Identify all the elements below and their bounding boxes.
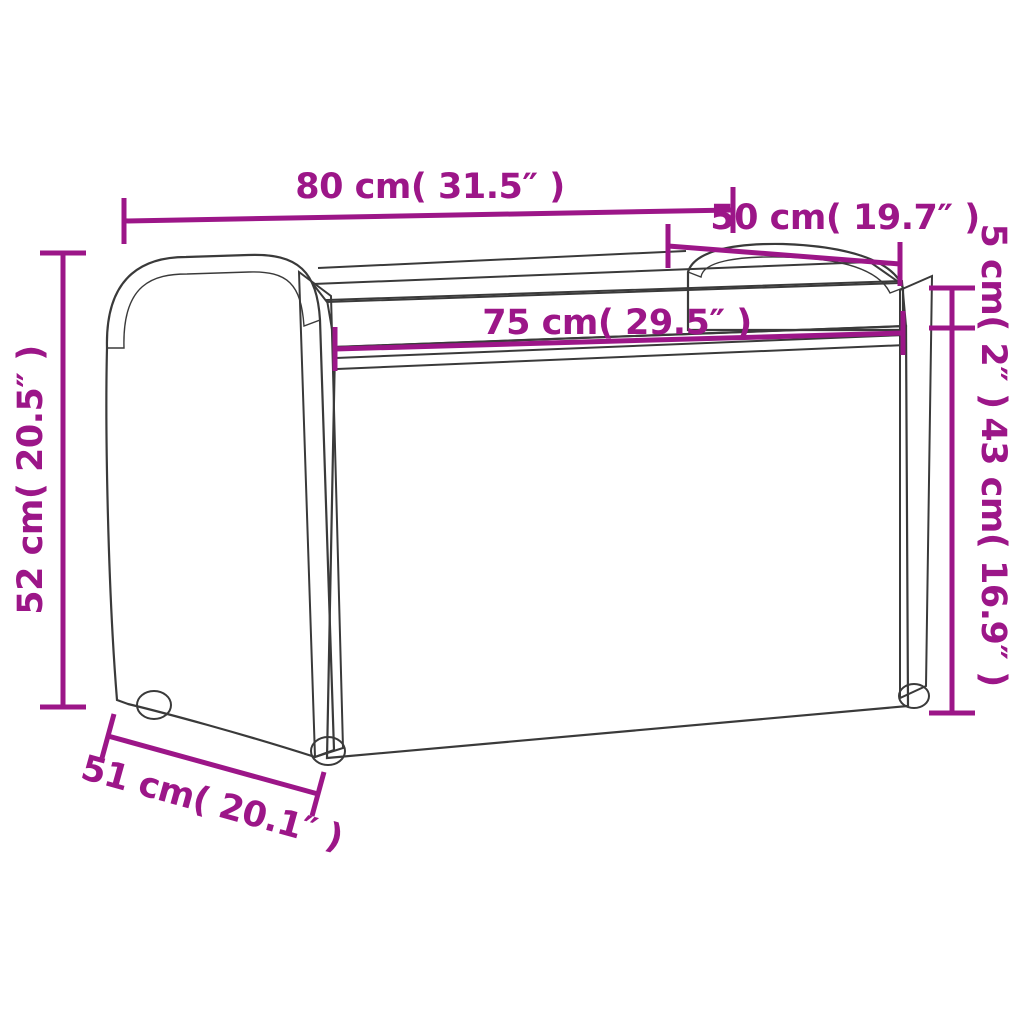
dimension-line: [124, 210, 733, 221]
bench-back-edge: [318, 251, 686, 268]
dimension-label-top-width: 80 cm( 31.5″ ): [295, 167, 564, 207]
dimension-label-side-height: 43 cm( 16.9″ ): [973, 417, 1013, 686]
dimension-seat-width: 75 cm( 29.5″ ): [335, 303, 903, 371]
bench-dimension-diagram: 80 cm( 31.5″ ) 50 cm( 19.7″ ) 75 cm( 29.…: [0, 0, 1024, 1024]
dimension-label-armrest-depth: 50 cm( 19.7″ ): [710, 198, 979, 238]
cushion-top-face: [313, 262, 900, 302]
dimension-right-vertical: 5 cm( 2″ ) 43 cm( 16.9″ ): [929, 223, 1013, 713]
dimension-label-overall-height: 52 cm( 20.5″ ): [11, 345, 51, 614]
dimension-diagram-page: 80 cm( 31.5″ ) 50 cm( 19.7″ ) 75 cm( 29.…: [0, 0, 1024, 1024]
bench-foot-left: [137, 691, 171, 719]
bench-body-front: [327, 326, 908, 758]
dimension-overall-height: 52 cm( 20.5″ ): [11, 253, 86, 707]
left-armrest: [106, 255, 343, 757]
dimension-label-seat-width: 75 cm( 29.5″ ): [482, 303, 751, 343]
dimension-top-width: 80 cm( 31.5″ ): [124, 167, 733, 244]
dimension-armrest-depth: 50 cm( 19.7″ ): [668, 198, 980, 286]
dimension-depth: 51 cm( 20.1″ ): [77, 714, 347, 859]
left-armrest-rim-weave: [107, 255, 320, 348]
bench-body: [327, 326, 908, 758]
dimension-label-cushion-thickness: 5 cm( 2″ ): [973, 223, 1013, 408]
left-armrest-body: [106, 255, 334, 757]
